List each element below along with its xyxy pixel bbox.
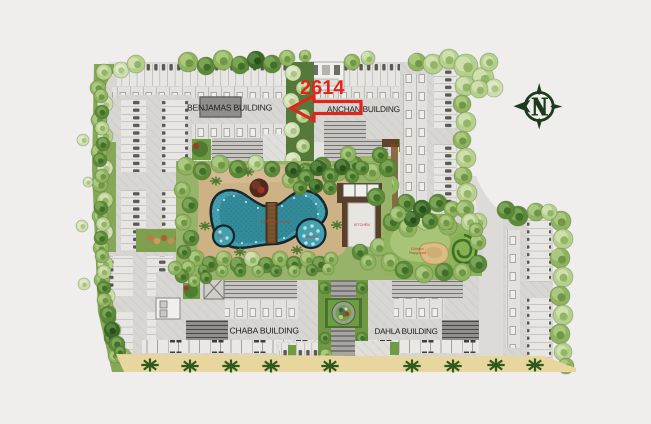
- svg-text:KITCHEN: KITCHEN: [354, 223, 370, 227]
- svg-text:JACUZZI: JACUZZI: [305, 235, 318, 239]
- svg-text:SWIMMING POOL: SWIMMING POOL: [260, 220, 290, 224]
- svg-text:2614: 2614: [300, 77, 345, 99]
- svg-text:SPA: SPA: [217, 234, 224, 238]
- svg-text:CHABA BUILDING: CHABA BUILDING: [230, 326, 300, 336]
- svg-text:BENJAMAS BUILDING: BENJAMAS BUILDING: [187, 103, 273, 113]
- svg-text:Playground: Playground: [409, 251, 426, 255]
- svg-text:DAHLA BUILDING: DAHLA BUILDING: [375, 327, 438, 336]
- svg-text:WALK: WALK: [390, 143, 400, 147]
